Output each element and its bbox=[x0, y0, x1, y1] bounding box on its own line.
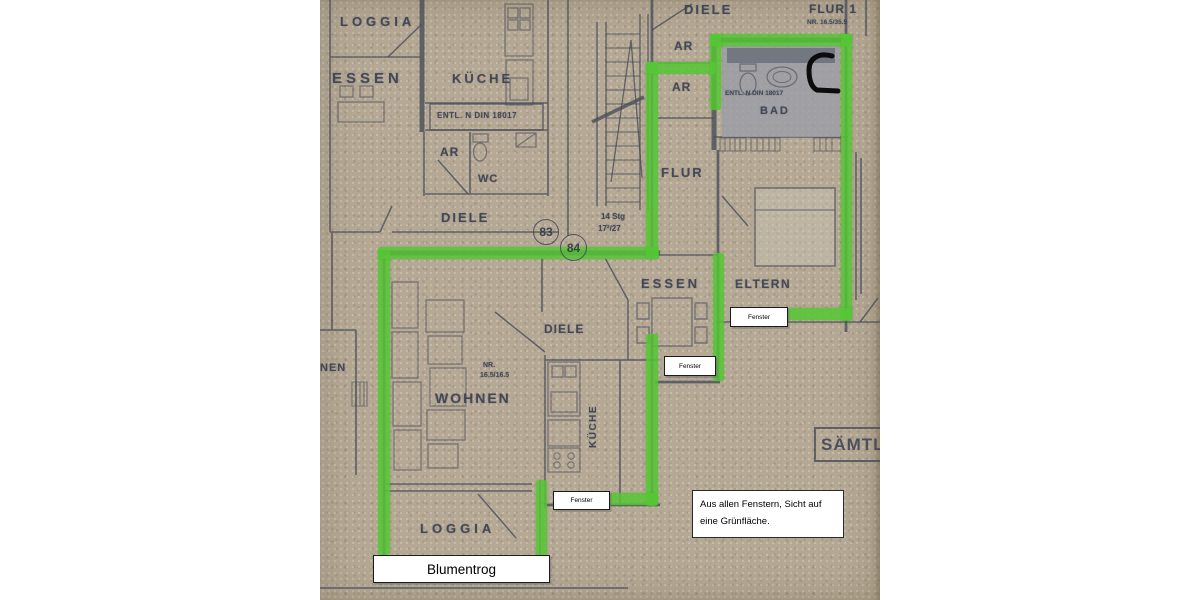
room-label-diele-left: DIELE bbox=[441, 210, 489, 225]
note-nr-wohnen-line2: 16.5/16.5 bbox=[480, 372, 509, 379]
highlight-stair-top bbox=[646, 62, 716, 74]
room-label-wohnen: WOHNEN bbox=[435, 390, 511, 406]
screenshot-page: LOGGIA ESSEN KÜCHE ENTL. N DIN 18017 AR … bbox=[0, 0, 1200, 600]
fenster-label-essen-text: Fenster bbox=[679, 363, 701, 370]
highlight-mid-horizontal bbox=[378, 247, 659, 259]
room-label-wc: WC bbox=[478, 173, 498, 185]
saemtl-box: SÄMTL bbox=[814, 427, 880, 462]
room-label-kueche-top: KÜCHE bbox=[452, 71, 513, 86]
room-label-flur: FLUR bbox=[661, 165, 704, 180]
saemtl-box-text: SÄMTL bbox=[821, 435, 880, 455]
room-label-loggia-bottom: LOGGIA bbox=[420, 521, 495, 536]
fenster-label-eltern-text: Fenster bbox=[748, 314, 770, 321]
highlight-bad-left bbox=[710, 34, 721, 110]
room-label-diele-mid: DIELE bbox=[544, 322, 584, 336]
note-box: Aus allen Fenstern, Sicht auf eine Grünf… bbox=[692, 490, 844, 538]
room-label-eltern: ELTERN bbox=[735, 277, 791, 291]
staircase bbox=[592, 14, 648, 210]
room-label-ar-left: AR bbox=[440, 145, 459, 159]
highlight-kueche-window bbox=[607, 493, 658, 505]
note-flur1-nr: NR. 16.5/35.5 bbox=[807, 19, 847, 26]
room-label-flur1: FLUR 1 bbox=[809, 2, 857, 16]
unit-number-83-text: 83 bbox=[539, 225, 552, 239]
unit-number-84: 84 bbox=[560, 234, 587, 261]
fenster-label-loggia: Fenster bbox=[553, 491, 610, 510]
room-label-ar-bottom: AR bbox=[672, 80, 691, 94]
unit-number-84-text: 84 bbox=[567, 241, 580, 255]
fenster-label-loggia-text: Fenster bbox=[570, 497, 592, 504]
room-label-bad: BAD bbox=[760, 105, 790, 117]
note-entl-bad: ENTL. N DIN 18017 bbox=[725, 90, 783, 97]
note-line1: Aus allen Fenstern, Sicht auf bbox=[700, 497, 836, 514]
blumentrog-label: Blumentrog bbox=[373, 555, 550, 583]
floorplan-scan: LOGGIA ESSEN KÜCHE ENTL. N DIN 18017 AR … bbox=[320, 0, 880, 600]
highlight-stair-vertical bbox=[646, 62, 658, 259]
room-label-nen-partial: NEN bbox=[320, 362, 346, 374]
highlight-loggia-right bbox=[536, 480, 547, 557]
highlight-right-vertical bbox=[841, 34, 852, 321]
fenster-label-essen: Fenster bbox=[664, 356, 716, 376]
stair-note-line1: 14 Stg bbox=[601, 212, 625, 221]
highlight-kueche-vertical bbox=[646, 334, 658, 506]
bathroom-area bbox=[720, 45, 841, 151]
blumentrog-label-text: Blumentrog bbox=[427, 562, 496, 577]
unit-number-83: 83 bbox=[533, 219, 559, 245]
room-label-loggia-top: LOGGIA bbox=[340, 14, 415, 29]
room-label-essen-left: ESSEN bbox=[332, 70, 403, 87]
fenster-label-eltern: Fenster bbox=[730, 307, 788, 327]
highlight-bad-top bbox=[710, 34, 852, 46]
bed bbox=[755, 188, 835, 266]
note-line2: eine Grünfläche. bbox=[700, 514, 836, 531]
room-label-kueche-vertical: KÜCHE bbox=[588, 405, 599, 448]
note-nr-wohnen-line1: NR. bbox=[483, 362, 495, 369]
room-label-essen-mid: ESSEN bbox=[641, 276, 700, 291]
highlight-left-vertical bbox=[378, 250, 390, 555]
highlight-eltern-window bbox=[786, 308, 852, 320]
room-label-ar-top: AR bbox=[674, 39, 693, 53]
room-label-diele-top-right: DIELE bbox=[684, 2, 732, 17]
stair-note-line2: 17²/27 bbox=[598, 224, 621, 233]
note-entl-kueche: ENTL. N DIN 18017 bbox=[437, 111, 517, 120]
